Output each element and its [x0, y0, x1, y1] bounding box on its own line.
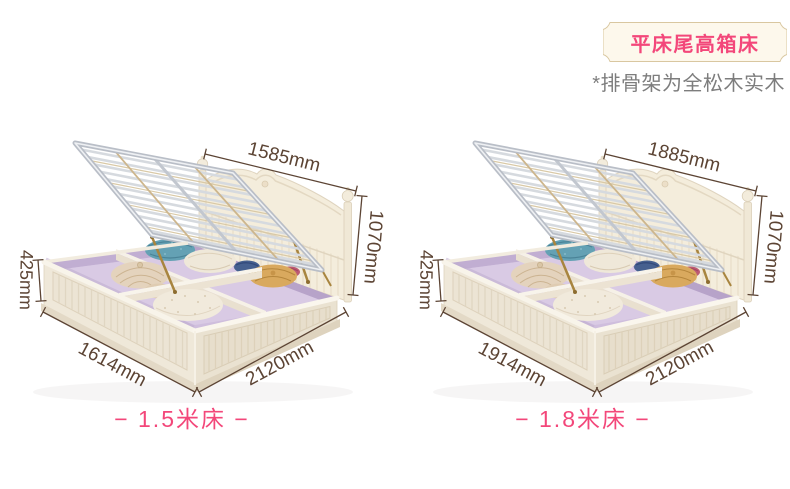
size-label-1.5m: − 1.5米床 −: [114, 406, 250, 432]
bed-illustration-1.5m: [33, 143, 362, 403]
dim-label-box-height-18: 425mm: [416, 250, 437, 310]
dim-label-box-height-15: 425mm: [16, 250, 37, 310]
size-label-1.8m: − 1.8米床 −: [515, 406, 651, 432]
beds-illustration: 1585mm 1070mm 425mm 1614mm 2120mm − 1.5米…: [0, 0, 790, 489]
dim-label-slat-width-18: 1885mm: [646, 138, 723, 176]
dim-label-height-18: 1070mm: [759, 209, 786, 284]
dim-label-height-15: 1070mm: [359, 209, 386, 284]
bed-illustration-1.8m: [433, 143, 762, 403]
product-spec-image: 平床尾高箱床 *排骨架为全松木实木: [0, 0, 790, 489]
dim-label-slat-width-15: 1585mm: [246, 138, 323, 176]
